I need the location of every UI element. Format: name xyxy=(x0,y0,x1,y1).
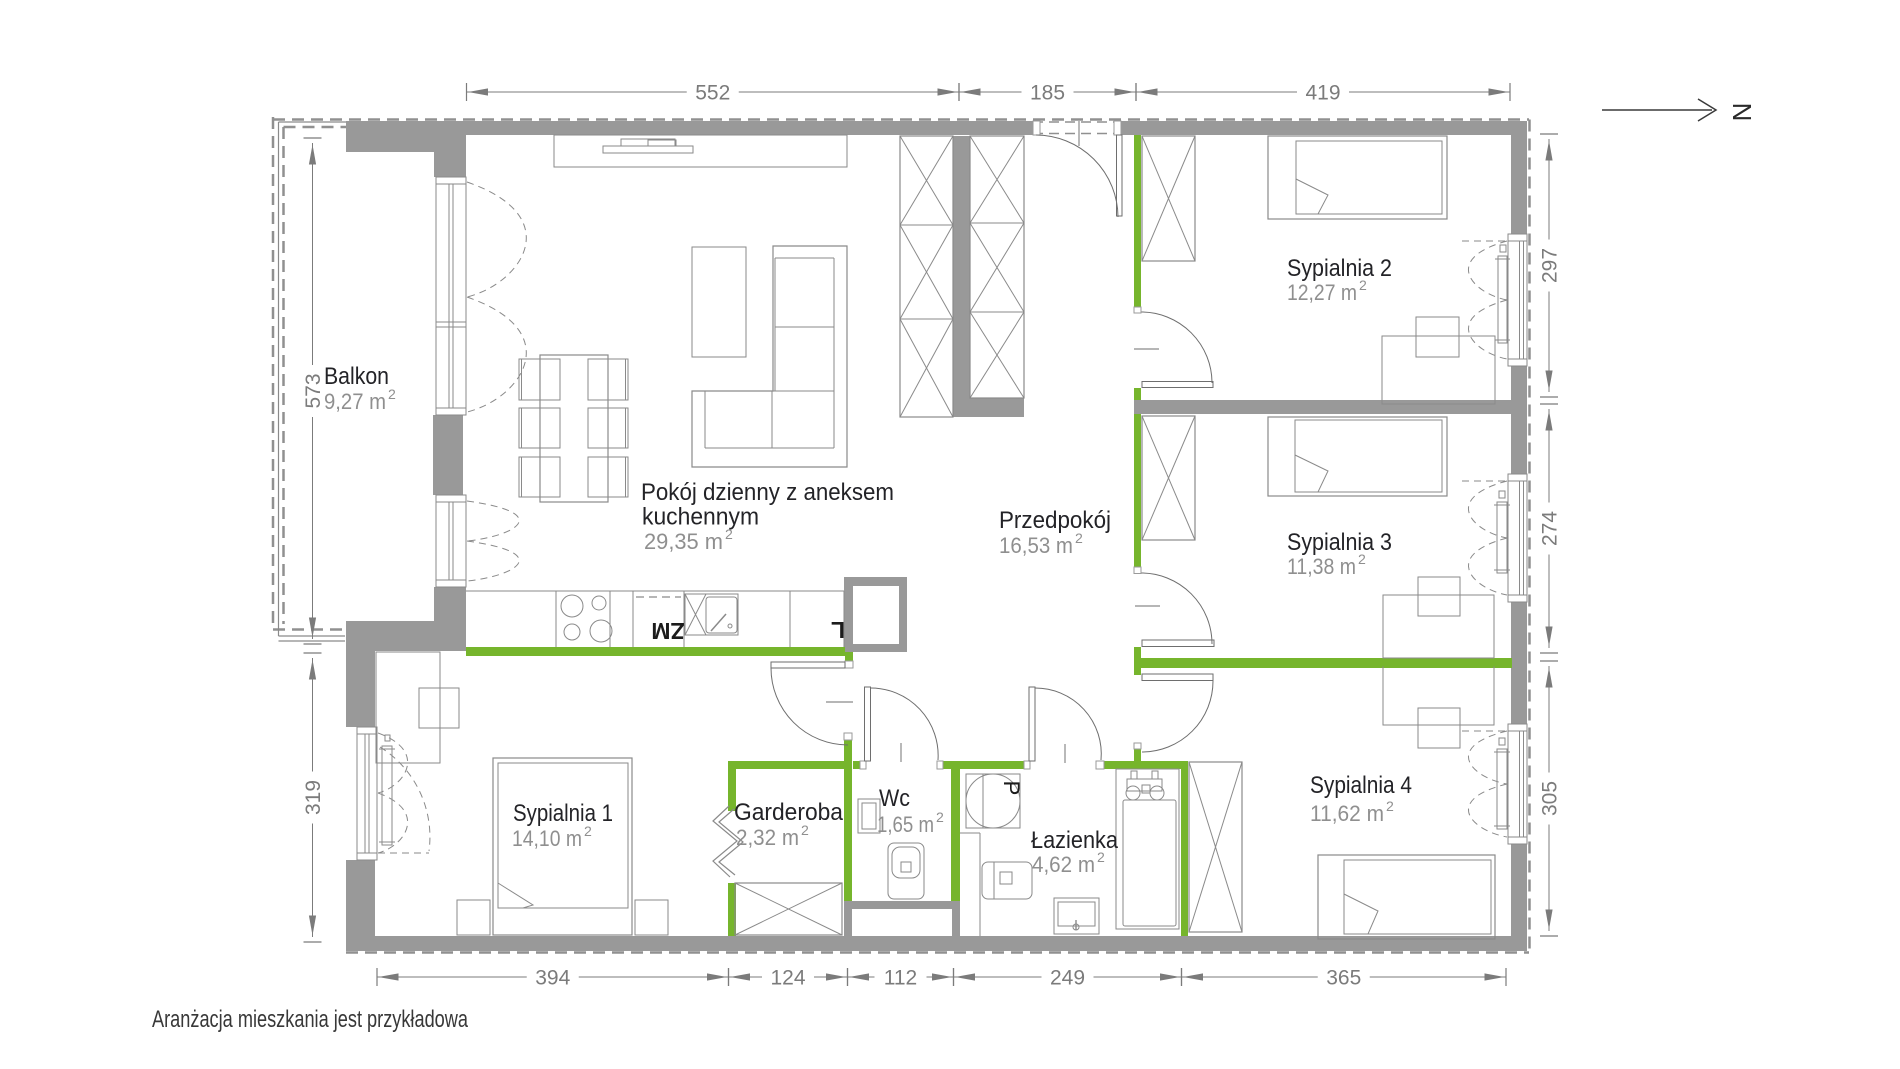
svg-text:Łazienka: Łazienka xyxy=(1031,827,1119,854)
svg-text:365: 365 xyxy=(1326,967,1361,990)
svg-text:Balkon: Balkon xyxy=(324,363,389,390)
svg-text:Garderoba: Garderoba xyxy=(734,799,844,826)
svg-text:2: 2 xyxy=(1359,277,1367,293)
svg-text:2: 2 xyxy=(1358,551,1366,567)
svg-text:kuchennym: kuchennym xyxy=(642,504,759,531)
svg-text:Sypialnia 4: Sypialnia 4 xyxy=(1310,772,1412,799)
svg-text:249: 249 xyxy=(1050,967,1085,990)
svg-text:394: 394 xyxy=(535,967,570,990)
svg-text:N: N xyxy=(1727,103,1757,122)
svg-text:Sypialnia 1: Sypialnia 1 xyxy=(513,800,613,827)
svg-text:14,10 m: 14,10 m xyxy=(512,826,582,851)
svg-text:2: 2 xyxy=(801,822,809,838)
svg-text:Sypialnia 3: Sypialnia 3 xyxy=(1287,529,1392,556)
svg-text:419: 419 xyxy=(1305,82,1340,105)
svg-text:11,38 m: 11,38 m xyxy=(1287,554,1356,579)
svg-text:4,62 m: 4,62 m xyxy=(1032,852,1095,877)
svg-text:Wc: Wc xyxy=(879,785,910,812)
svg-text:Sypialnia 2: Sypialnia 2 xyxy=(1287,255,1392,282)
svg-text:2: 2 xyxy=(584,823,592,839)
svg-text:16,53 m: 16,53 m xyxy=(999,533,1073,558)
svg-text:9,27 m: 9,27 m xyxy=(324,389,386,414)
svg-text:Aranżacja mieszkania jest przy: Aranżacja mieszkania jest przykładowa xyxy=(152,1006,468,1033)
svg-text:11,62 m: 11,62 m xyxy=(1310,801,1384,826)
svg-text:185: 185 xyxy=(1030,82,1065,105)
svg-text:1,65 m: 1,65 m xyxy=(877,812,934,837)
svg-text:552: 552 xyxy=(695,82,730,105)
svg-text:Przedpokój: Przedpokój xyxy=(999,507,1111,534)
svg-text:2: 2 xyxy=(1097,849,1105,865)
svg-text:573: 573 xyxy=(302,373,325,408)
svg-text:112: 112 xyxy=(884,967,917,990)
svg-text:274: 274 xyxy=(1539,511,1562,546)
svg-text:124: 124 xyxy=(770,967,805,990)
svg-text:297: 297 xyxy=(1539,248,1562,283)
svg-text:L: L xyxy=(831,617,845,643)
svg-text:319: 319 xyxy=(302,780,325,815)
svg-text:2: 2 xyxy=(388,386,396,402)
svg-text:2: 2 xyxy=(1386,798,1394,814)
svg-text:ZM: ZM xyxy=(651,618,684,644)
svg-text:12,27 m: 12,27 m xyxy=(1287,280,1357,305)
svg-text:2: 2 xyxy=(1075,530,1083,546)
svg-text:2,32 m: 2,32 m xyxy=(736,825,799,850)
svg-text:2: 2 xyxy=(936,809,944,825)
svg-text:Pokój dzienny z aneksem: Pokój dzienny z aneksem xyxy=(641,479,894,506)
svg-text:P: P xyxy=(999,781,1024,796)
svg-text:305: 305 xyxy=(1539,781,1562,816)
svg-text:29,35 m: 29,35 m xyxy=(644,529,723,554)
svg-text:2: 2 xyxy=(725,526,733,542)
